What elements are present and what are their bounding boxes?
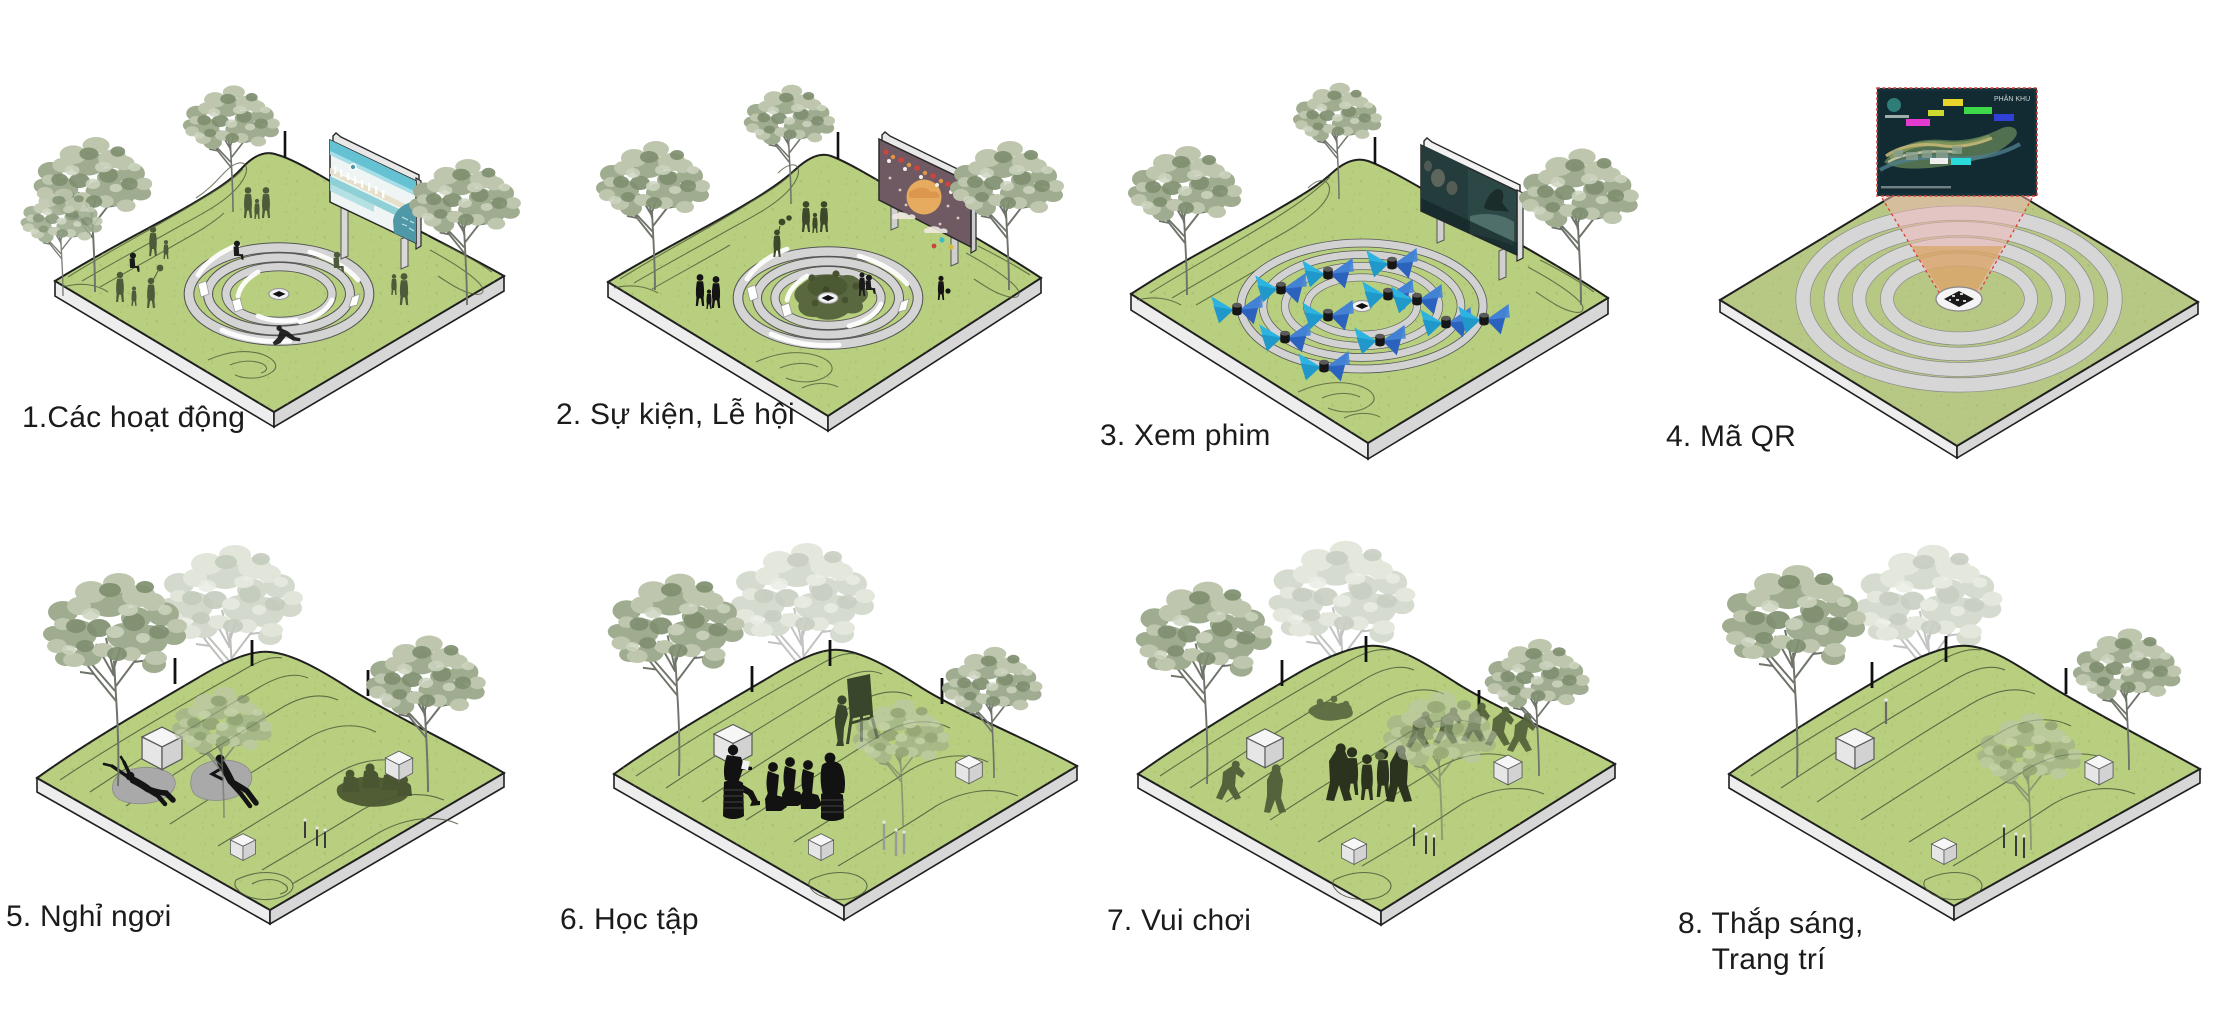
svg-text:PHÂN KHU: PHÂN KHU bbox=[1994, 94, 2030, 103]
